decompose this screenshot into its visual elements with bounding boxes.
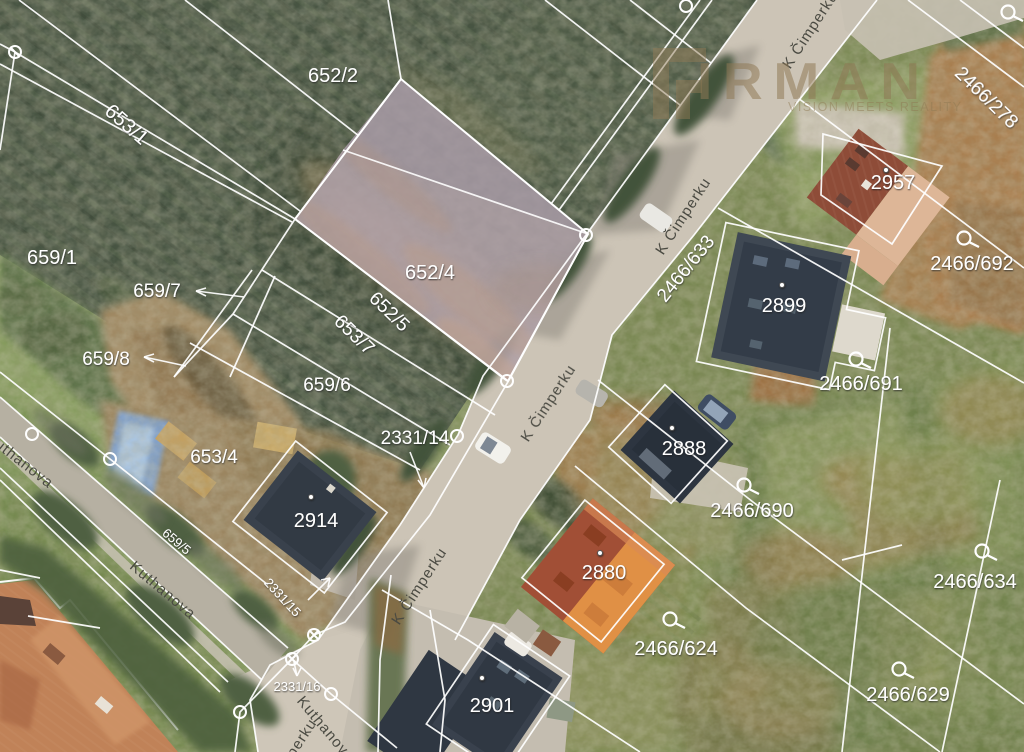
svg-text:2888: 2888 (662, 438, 707, 460)
svg-text:659/1: 659/1 (27, 247, 77, 269)
svg-text:2899: 2899 (762, 295, 807, 317)
svg-text:2466/634: 2466/634 (933, 571, 1016, 593)
svg-text:2914: 2914 (294, 510, 339, 532)
svg-text:2466/691: 2466/691 (819, 373, 902, 395)
svg-text:659/6: 659/6 (303, 375, 351, 396)
svg-text:2466/690: 2466/690 (710, 500, 793, 522)
svg-text:2331/16: 2331/16 (274, 679, 321, 694)
svg-text:VISION MEETS REALITY: VISION MEETS REALITY (788, 100, 962, 114)
svg-text:659/7: 659/7 (133, 281, 181, 302)
svg-text:653/4: 653/4 (190, 447, 238, 468)
svg-text:652/2: 652/2 (308, 65, 358, 87)
svg-text:2880: 2880 (582, 562, 627, 584)
svg-text:2957: 2957 (871, 172, 916, 194)
svg-text:2901: 2901 (470, 695, 515, 717)
svg-text:2466/624: 2466/624 (634, 638, 717, 660)
svg-text:652/4: 652/4 (405, 262, 455, 284)
svg-text:2466/629: 2466/629 (866, 684, 949, 706)
svg-text:659/8: 659/8 (82, 349, 130, 370)
svg-text:2331/14: 2331/14 (381, 428, 450, 449)
svg-text:2466/692: 2466/692 (930, 253, 1013, 275)
